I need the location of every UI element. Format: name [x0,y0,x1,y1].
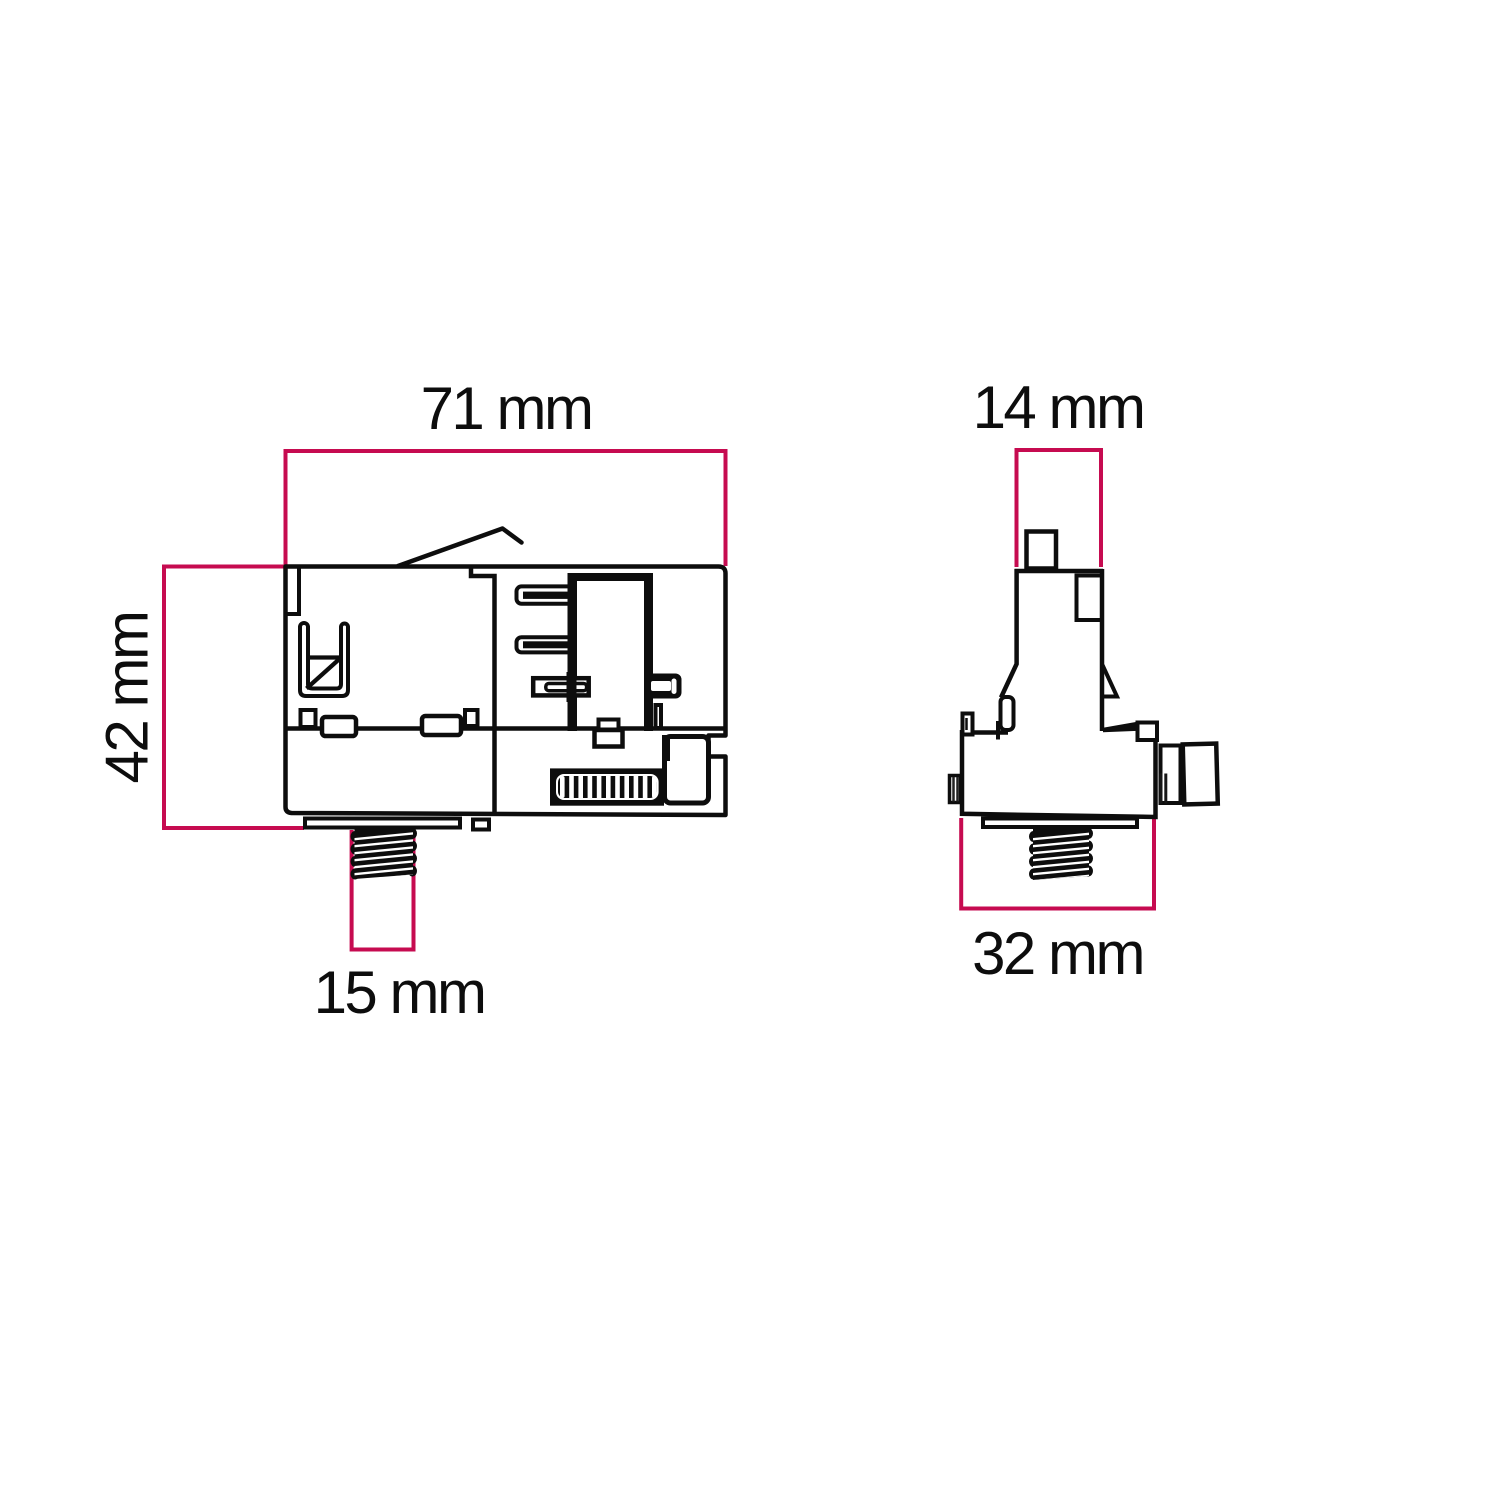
svg-text:71 mm: 71 mm [421,375,592,442]
svg-text:14 mm: 14 mm [973,374,1144,441]
svg-text:15 mm: 15 mm [314,959,485,1026]
svg-text:32 mm: 32 mm [972,920,1143,987]
svg-text:42 mm: 42 mm [94,613,161,784]
